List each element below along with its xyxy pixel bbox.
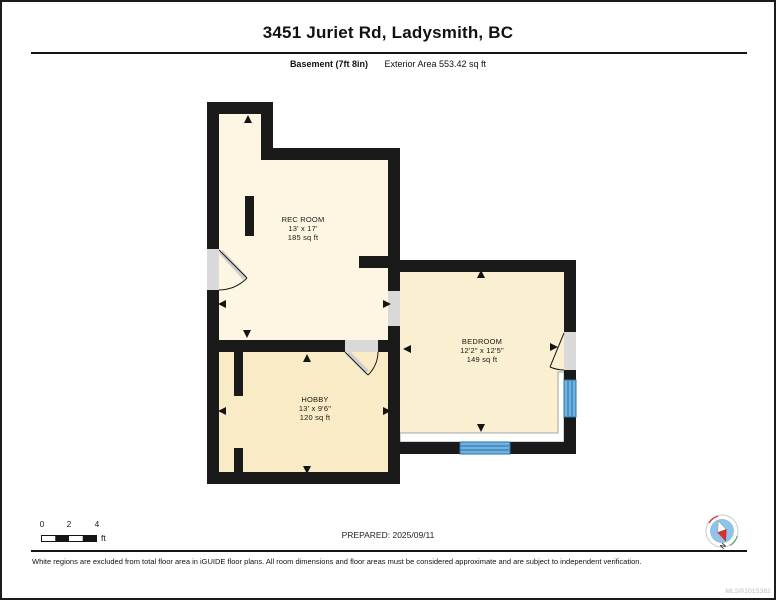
compass: N [700,510,746,556]
scale-tick-2: 2 [64,520,74,529]
scale-tick-0: 0 [37,520,47,529]
bedroom-side-window [564,380,576,417]
disclaimer-text: White regions are excluded from total fl… [32,557,748,566]
room-area: 120 sq ft [245,413,385,422]
room-name: BEDROOM [412,337,552,346]
footer-divider [31,550,747,552]
floorplan-page: 3451 Juriet Rd, Ladysmith, BC Basement (… [0,0,776,600]
prepared-date: PREPARED: 2025/09/11 [2,530,774,540]
room-dimensions: 12'2" x 12'5" [412,346,552,355]
hobby-label: HOBBY 13' x 9'6" 120 sq ft [245,395,385,422]
bedroom-label: BEDROOM 12'2" x 12'5" 149 sq ft [412,337,552,364]
bedroom-bottom-window [460,442,510,454]
room-area: 149 sq ft [412,355,552,364]
room-area: 185 sq ft [233,233,373,242]
room-name: REC ROOM [233,215,373,224]
room-name: HOBBY [245,395,385,404]
floor-plan-drawing [2,2,776,600]
room-dimensions: 13' x 17' [233,224,373,233]
bedroom-door-opening [564,332,576,370]
room-dimensions: 13' x 9'6" [245,404,385,413]
rec-room-label: REC ROOM 13' x 17' 185 sq ft [233,215,373,242]
scale-tick-4: 4 [92,520,102,529]
mls-watermark: MLS®1015382 [725,588,771,595]
hobby-door-opening [345,340,378,352]
rec-room-entry-opening [207,249,219,290]
rec-bedroom-opening [388,291,400,326]
